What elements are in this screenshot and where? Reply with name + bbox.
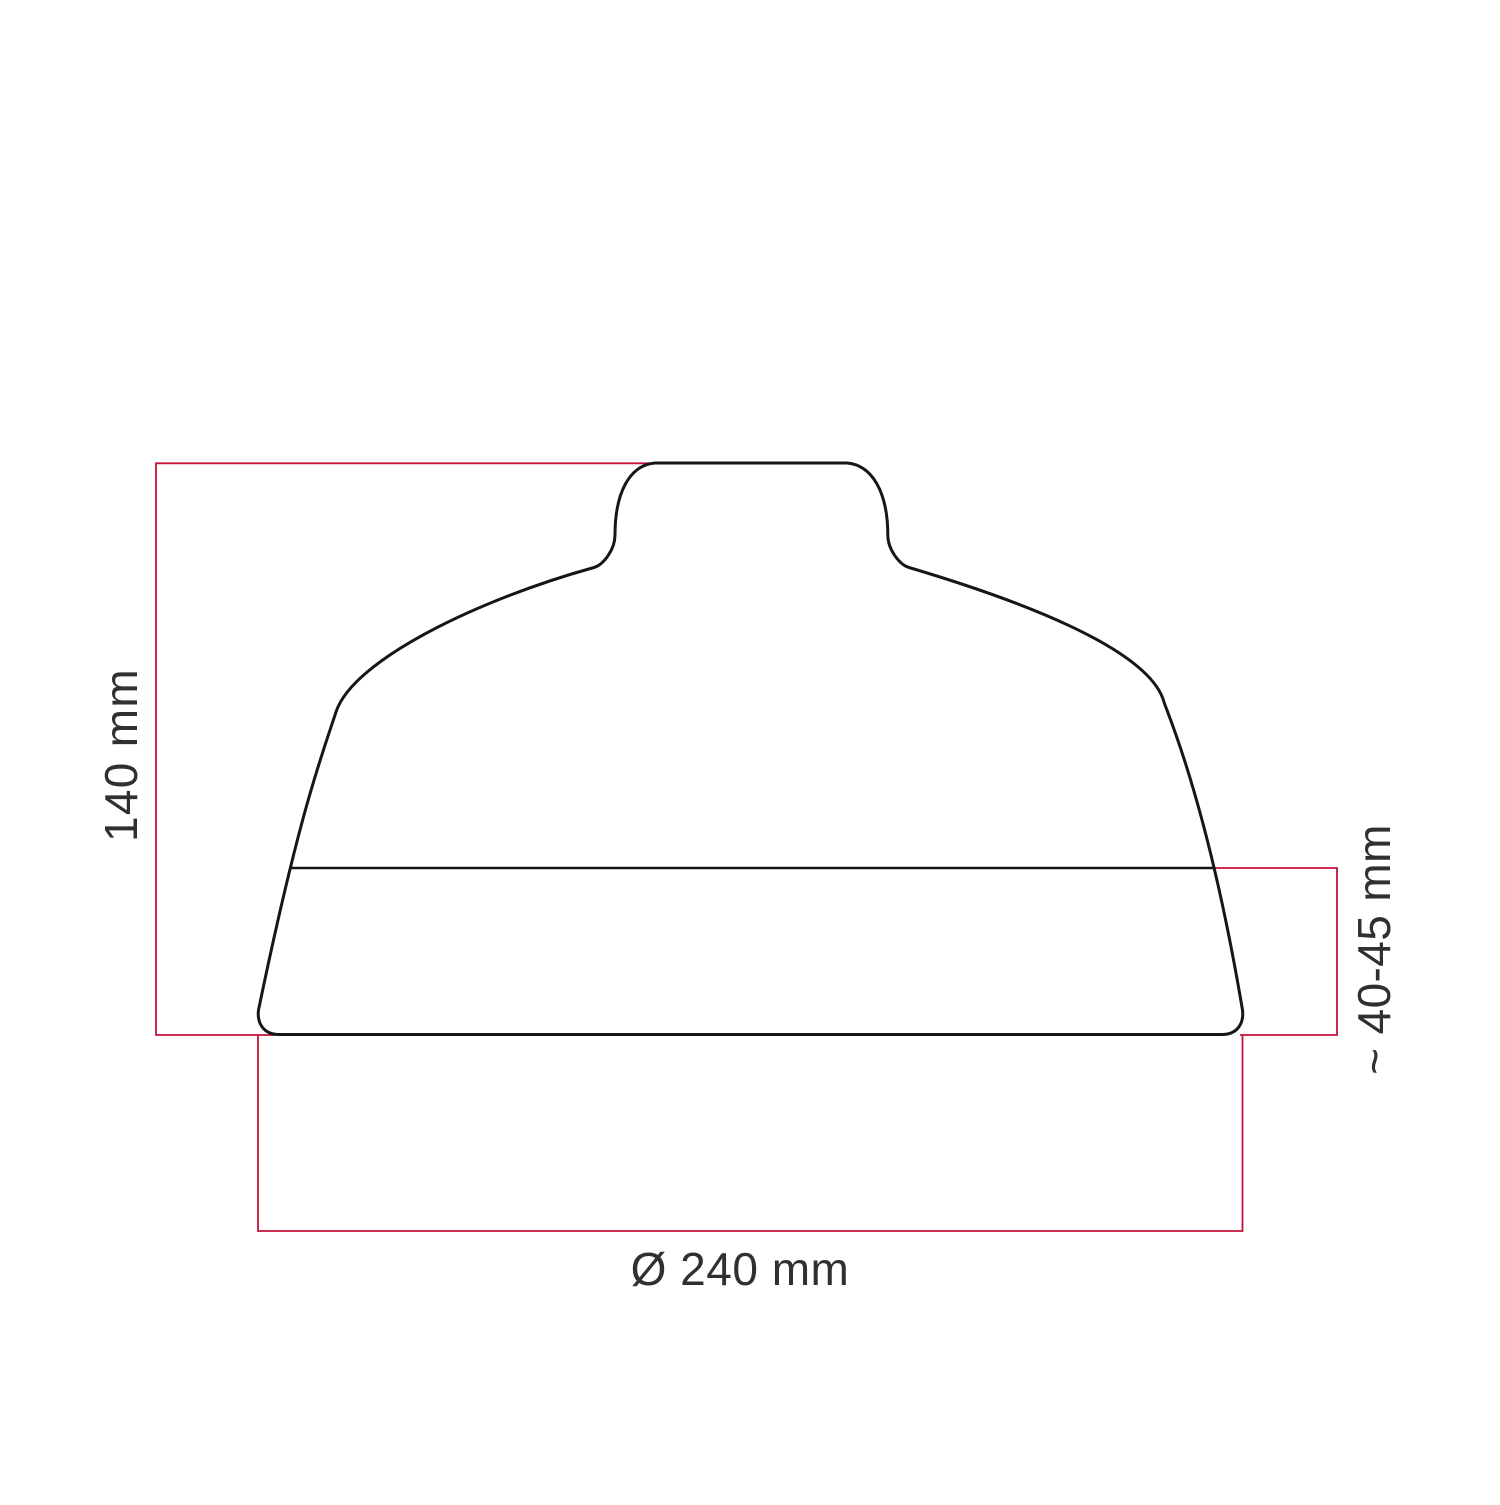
svg-text:Ø 240 mm: Ø 240 mm: [631, 1243, 850, 1295]
svg-text:140 mm: 140 mm: [95, 668, 147, 842]
svg-text:~ 40-45 mm: ~ 40-45 mm: [1348, 824, 1400, 1075]
